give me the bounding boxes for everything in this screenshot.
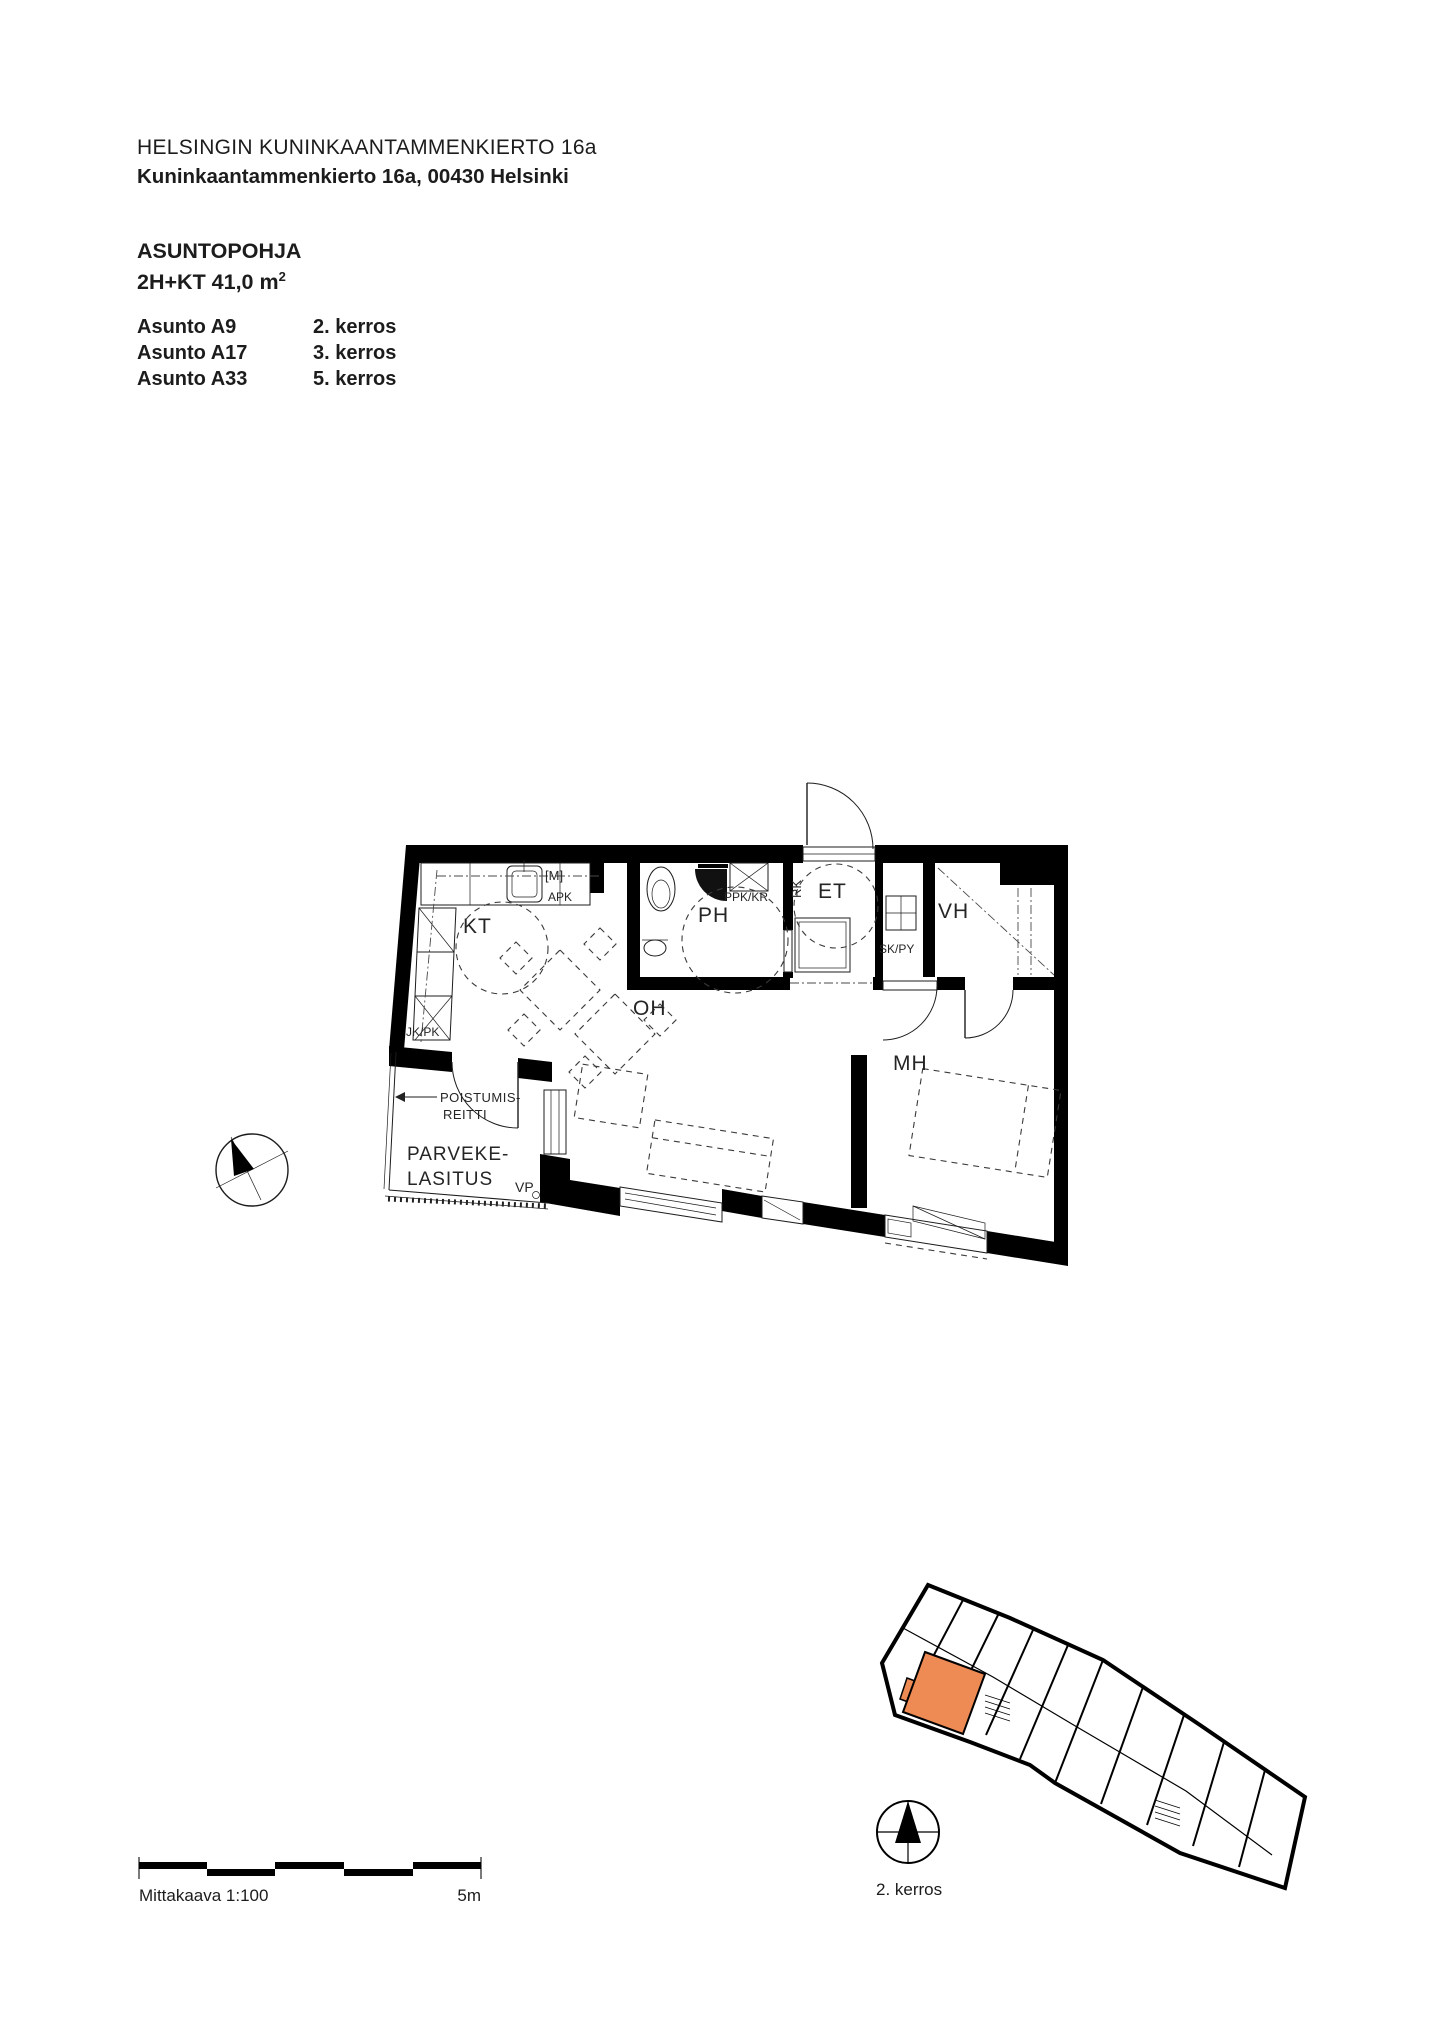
floor-plan-document: HELSINGIN KUNINKAANTAMMENKIERTO 16a Kuni… — [0, 0, 1440, 2036]
toilet — [647, 867, 675, 911]
room-label-closet-room: VH — [938, 900, 969, 923]
apartment-row: Asunto A9 2. kerros — [137, 314, 396, 340]
balcony-labels: POISTUMIS- REITTI PARVEKE- LASITUS — [407, 1090, 521, 1190]
entry-wardrobe — [795, 918, 850, 972]
window-living-room — [620, 1187, 722, 1222]
closet-door — [965, 990, 1013, 1038]
document-header: HELSINGIN KUNINKAANTAMMENKIERTO 16a Kuni… — [137, 136, 597, 189]
room-label-entry: ET — [818, 880, 847, 903]
key-plan-floor-label: 2. kerros — [876, 1880, 942, 1899]
apartment-floor: 5. kerros — [313, 366, 396, 392]
bedroom-door — [883, 981, 937, 1040]
bathroom-door — [784, 930, 792, 972]
north-compass — [200, 1120, 310, 1230]
scale-label: Mittakaava 1:100 — [139, 1886, 268, 1905]
apartment-row: Asunto A33 5. kerros — [137, 366, 396, 392]
apartment-floor: 2. kerros — [313, 314, 396, 340]
plan-size-text: 2H+KT 41,0 m — [137, 270, 279, 294]
plan-type-label: ASUNTOPOHJA — [137, 239, 301, 264]
washer-space — [730, 863, 768, 891]
key-plan-compass — [877, 1801, 939, 1863]
scale-bar: Mittakaava 1:100 5m — [125, 1848, 505, 1908]
label-dishwasher: APK — [548, 890, 572, 904]
room-label-kitchen: KT — [463, 915, 492, 938]
project-title: HELSINGIN KUNINKAANTAMMENKIERTO 16a — [137, 136, 597, 160]
label-exit-route-1: POISTUMIS- — [440, 1090, 521, 1105]
balcony-glazing-hatch — [388, 1199, 546, 1206]
scale-max-label: 5m — [457, 1886, 481, 1905]
label-washer-dryer: PPK/KR — [724, 890, 768, 904]
apartment-name: Asunto A9 — [137, 314, 313, 340]
window-balcony — [544, 1090, 566, 1154]
project-address: Kuninkaantammenkierto 16a, 00430 Helsink… — [137, 165, 597, 189]
washbasin — [642, 940, 668, 956]
compass-circle — [216, 1134, 288, 1206]
sofa-long — [647, 1120, 774, 1192]
sofa — [574, 1064, 648, 1128]
label-rk: RK — [789, 880, 804, 898]
plan-info: ASUNTOPOHJA 2H+KT 41,0 m2 — [137, 239, 301, 295]
plan-size-superscript: 2 — [279, 269, 286, 284]
apartment-floor: 3. kerros — [313, 340, 396, 366]
apartment-floor-plan: KT PH ET VH OH MH [M] APK PPK/KR RK SK/P… — [380, 770, 1110, 1340]
key-plan: 2. kerros — [860, 1560, 1340, 1910]
apartment-name: Asunto A17 — [137, 340, 313, 366]
entrance-door — [803, 783, 875, 861]
window-bedroom — [885, 1206, 987, 1259]
label-balcony-glazing-2: LASITUS — [407, 1169, 493, 1190]
vp-drain-symbol — [533, 1192, 540, 1199]
label-vp: VP — [515, 1179, 534, 1195]
label-fridge-freezer: JK/PK — [406, 1025, 439, 1039]
label-microwave: [M] — [545, 868, 563, 883]
room-label-bedroom: MH — [893, 1052, 928, 1075]
plan-size-label: 2H+KT 41,0 m2 — [137, 269, 301, 295]
apartment-row: Asunto A17 3. kerros — [137, 340, 396, 366]
bed — [909, 1069, 1061, 1178]
kitchen-cabinets — [413, 870, 456, 1042]
north-arrow — [895, 1801, 921, 1843]
label-balcony-glazing-1: PARVEKE- — [407, 1144, 509, 1165]
apartment-list: Asunto A9 2. kerros Asunto A17 3. kerros… — [137, 314, 396, 392]
sk-cabinet — [886, 896, 916, 930]
apartment-name: Asunto A33 — [137, 366, 313, 392]
kitchen-counter — [421, 860, 600, 905]
room-label-living-room: OH — [633, 997, 667, 1020]
label-exit-route-2: REITTI — [443, 1107, 487, 1122]
scale-segments — [139, 1862, 481, 1876]
label-sk-py: SK/PY — [879, 942, 914, 956]
exit-arrow-head — [395, 1092, 405, 1102]
window-small — [762, 1196, 803, 1224]
windows — [544, 1090, 987, 1259]
room-label-bathroom: PH — [698, 904, 729, 927]
